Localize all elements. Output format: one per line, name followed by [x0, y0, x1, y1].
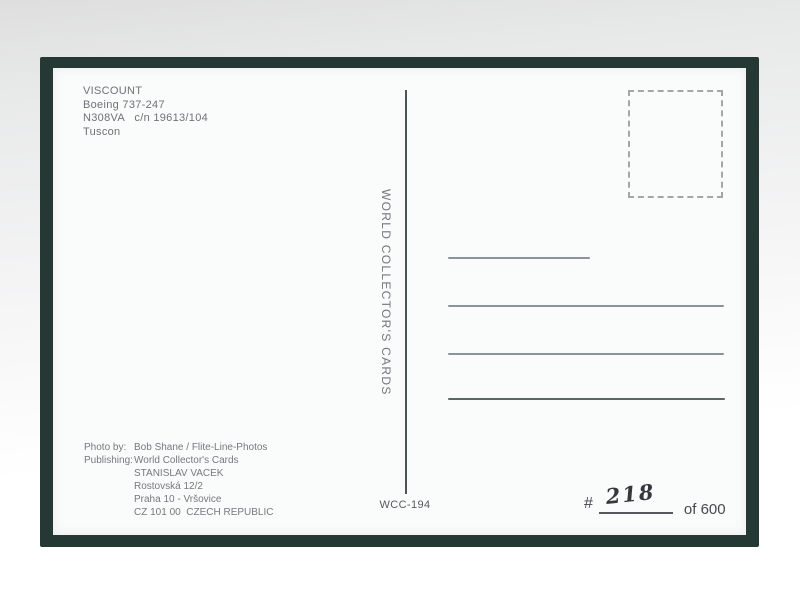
- aircraft-name: VISCOUNT: [83, 85, 208, 99]
- edition-number-block: # 218 of 600: [584, 484, 726, 514]
- aircraft-type: Boeing 737-247: [83, 99, 208, 113]
- center-divider-line: [405, 90, 407, 494]
- hash-symbol: #: [584, 495, 593, 514]
- publisher-street: Rostovská 12/2: [134, 480, 274, 493]
- address-line-2: [448, 305, 724, 307]
- credits-block: Photo by: Bob Shane / Flite-Line-Photos …: [84, 441, 274, 519]
- handwritten-edition-number: 218: [604, 479, 656, 509]
- edition-number-line: 218: [599, 484, 673, 514]
- publisher-city: Praha 10 - Vršovice: [134, 493, 274, 506]
- edition-total: of 600: [684, 501, 726, 518]
- card-number: WCC-194: [354, 499, 456, 511]
- postcard-back: VISCOUNT Boeing 737-247 N308VA c/n 19613…: [53, 68, 746, 535]
- photo-by-value: Bob Shane / Flite-Line-Photos: [134, 441, 267, 454]
- publisher-person: STANISLAV VACEK: [134, 467, 274, 480]
- address-line-4: [448, 398, 725, 400]
- address-line-3: [448, 353, 724, 355]
- publisher-country: CZ 101 00 CZECH REPUBLIC: [134, 506, 274, 519]
- scanned-postcard-photo: VISCOUNT Boeing 737-247 N308VA c/n 19613…: [0, 0, 800, 600]
- photo-by-label: Photo by:: [84, 441, 134, 454]
- postcard-dark-border: VISCOUNT Boeing 737-247 N308VA c/n 19613…: [40, 57, 759, 547]
- stamp-box: [628, 90, 723, 198]
- aircraft-location: Tuscon: [83, 126, 208, 140]
- aircraft-info-block: VISCOUNT Boeing 737-247 N308VA c/n 19613…: [83, 85, 208, 139]
- brand-vertical-text: WORLD COLLECTOR'S CARDS: [379, 189, 393, 419]
- address-line-1: [448, 257, 590, 259]
- publishing-label: Publishing:: [84, 454, 134, 519]
- publisher-name: World Collector's Cards: [134, 454, 274, 467]
- aircraft-registration: N308VA c/n 19613/104: [83, 112, 208, 126]
